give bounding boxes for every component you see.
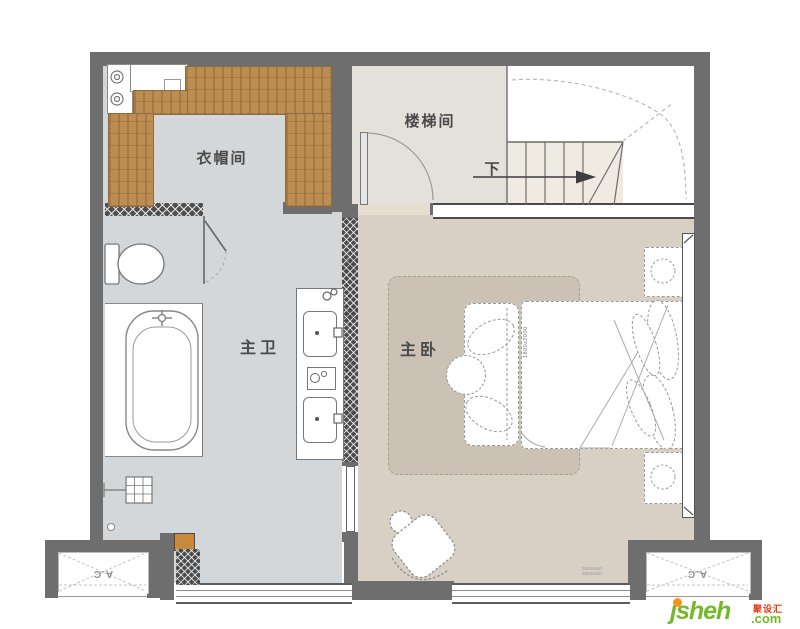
floor-plan-canvas: A.C A.C	[0, 0, 800, 629]
vanity-sink-bottom	[303, 397, 337, 443]
label-master-bedroom: 主卧	[390, 336, 450, 360]
bed-dimension-text: 1800x2000	[523, 306, 529, 358]
wardrobe-left	[108, 113, 154, 207]
floor-note-line2: 2600x600	[582, 571, 602, 576]
nightstand-top	[644, 247, 686, 297]
wardrobe-undercounter	[133, 90, 188, 115]
wall-right	[694, 52, 710, 552]
bed-bench	[464, 303, 519, 446]
watermark-suffix: .com	[751, 611, 781, 626]
wall-bath-bedroom-hatched	[342, 218, 358, 462]
wardrobe-top	[185, 66, 332, 115]
wall-bottom-center	[352, 581, 454, 600]
vanity-sink-top	[303, 311, 337, 357]
ac-right-label: A.C	[678, 568, 716, 579]
ac-right-arm-left	[628, 540, 646, 600]
vanity-accessory-box	[307, 367, 336, 390]
duct-shaft	[176, 549, 200, 585]
wall-cloak-stair	[330, 66, 352, 212]
label-master-bath: 主卫	[230, 334, 290, 358]
watermark-logo: jsheh 聚设汇 .com	[670, 595, 800, 629]
ac-left-sill	[58, 592, 147, 600]
label-stairs-down: 下	[482, 158, 504, 179]
wall-stair-bedroom	[433, 203, 694, 219]
wall-left	[90, 52, 103, 552]
stair-tread-zone	[507, 142, 623, 205]
watermark-orange-dot-icon	[673, 598, 682, 607]
floor-note: 2600x600 2600x600	[582, 566, 602, 576]
ac-left-arm-left	[45, 540, 58, 598]
bedroom-window	[452, 583, 630, 604]
bathtub-niche	[105, 303, 203, 457]
hall-door-leaf	[360, 132, 368, 205]
ac-right-top-bar	[628, 540, 762, 552]
label-cloakroom: 衣帽间	[182, 147, 262, 168]
ac-left-label: A.C	[84, 568, 122, 579]
wall-bath-bedroom-lower	[344, 542, 358, 583]
headboard-panel	[682, 233, 695, 518]
wall-shaft-left	[160, 533, 174, 600]
ac-left-top-bar	[45, 540, 160, 552]
label-stairwell: 楼梯间	[390, 110, 470, 131]
nightstand-bottom	[644, 452, 686, 504]
bed-mattress	[521, 301, 687, 449]
bathroom-window	[176, 583, 352, 604]
bath-door-jamb-bottom	[342, 532, 358, 542]
wardrobe-right	[285, 113, 332, 207]
bath-door-leaf	[346, 466, 355, 532]
